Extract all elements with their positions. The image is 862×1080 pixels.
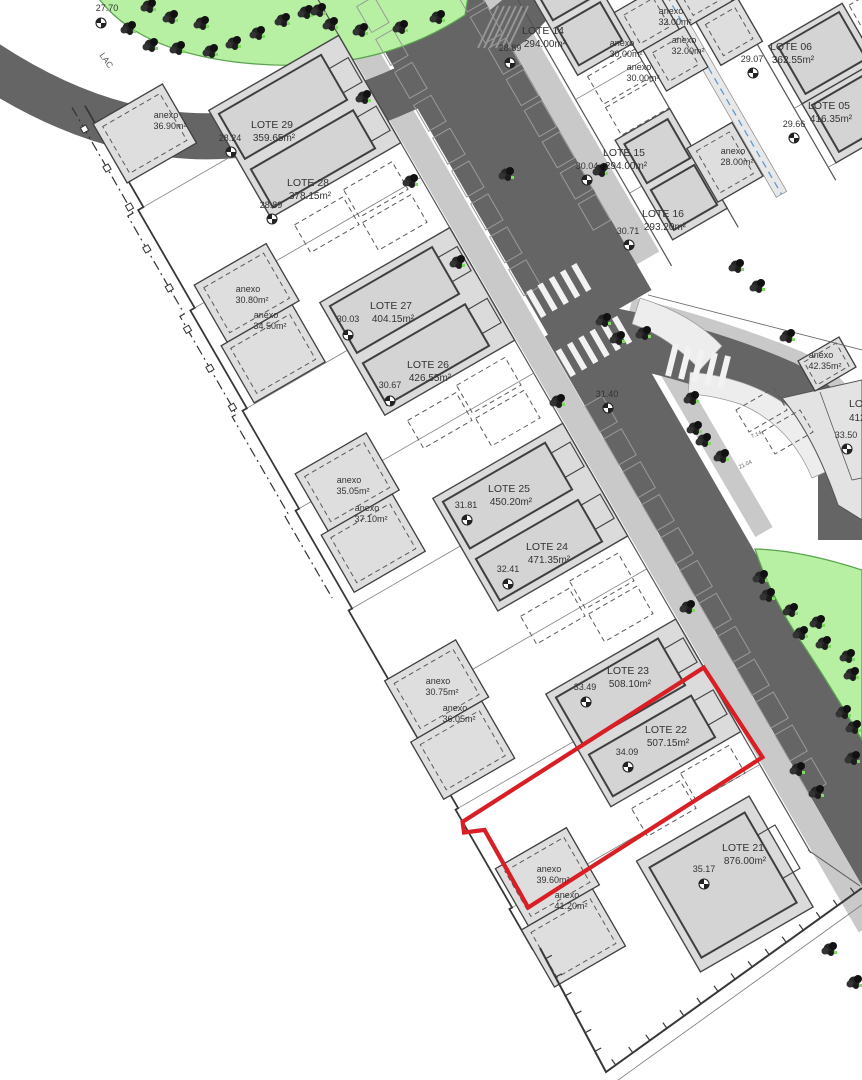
annex-area: 37.10m² xyxy=(354,514,387,524)
tree-icon xyxy=(143,38,159,52)
lot-area: 362.55m² xyxy=(772,55,815,66)
benchmark-icon xyxy=(582,175,592,185)
annex-title: anexo xyxy=(254,310,279,320)
annex-title: anexo xyxy=(443,703,468,713)
annex-title: anexo xyxy=(337,475,362,485)
lot-elevation: 30.71 xyxy=(617,226,640,236)
spot-elevation: 27.70 xyxy=(96,3,119,13)
benchmark-icon xyxy=(462,515,472,525)
sidewalks xyxy=(332,0,862,926)
annex-title: anexo xyxy=(721,146,746,156)
lot-area: 416.35m² xyxy=(810,114,853,125)
lot-elevation: 33.49 xyxy=(574,682,597,692)
lot-elevation: 33.50 xyxy=(835,430,858,440)
lot-name: LOTE 22 xyxy=(645,724,687,736)
benchmark-icon xyxy=(623,762,633,772)
annex-area: 42.35m² xyxy=(808,361,841,371)
annex-title: anexo xyxy=(610,38,635,48)
lot-elevation: 35.17 xyxy=(693,864,716,874)
annex-title: anexo xyxy=(672,35,697,45)
benchmark-icon xyxy=(343,330,353,340)
lot-name: LOTE xyxy=(849,398,862,410)
lot-elevation: 28.89 xyxy=(499,43,522,53)
benchmark-icon xyxy=(624,240,634,250)
lot-elevation: 28.24 xyxy=(219,133,242,143)
benchmark-icon xyxy=(267,214,277,224)
lot-name: LOTE 21 xyxy=(722,842,764,854)
lot-elevation: 30.04 xyxy=(576,161,599,171)
annex-title: anexo xyxy=(355,503,380,513)
benchmark-icon xyxy=(385,396,395,406)
lot-elevation: 29.66 xyxy=(783,119,806,129)
lot-name: LOTE 27 xyxy=(370,300,412,312)
annex-area: 32.00m² xyxy=(671,46,704,56)
annex-area: 30.80m² xyxy=(235,295,268,305)
annex-area: 39.60m² xyxy=(536,875,569,885)
lot-name: LOTE 28 xyxy=(287,177,329,189)
lot-name: LOTE 05 xyxy=(808,100,850,112)
lot-elevation: 32.41 xyxy=(497,564,520,574)
dimension-label: 21.04 xyxy=(738,459,753,470)
annex-title: anexo xyxy=(809,350,834,360)
tree-icon xyxy=(750,279,766,293)
lot-area: 294.00m² xyxy=(524,39,567,50)
spot-elevation: 31.40 xyxy=(596,389,619,399)
lot-area: 450.20m² xyxy=(490,497,533,508)
lot-area: 378.15m² xyxy=(289,191,332,202)
lot-area: 426.55m² xyxy=(409,373,452,384)
benchmark-icon xyxy=(505,58,515,68)
benchmark-icon xyxy=(748,68,758,78)
benchmark-icon xyxy=(699,879,709,889)
lot-name: LOTE 25 xyxy=(488,483,530,495)
benchmark-icon xyxy=(226,147,236,157)
benchmark-icon xyxy=(603,403,613,413)
annex-area: 28.00m² xyxy=(720,157,753,167)
annex-title: anexo xyxy=(236,284,261,294)
annex-area: 41.20m² xyxy=(554,901,587,911)
benchmark-icon xyxy=(789,133,799,143)
lot-name: LOTE 15 xyxy=(603,147,645,159)
lot-elevation: 31.81 xyxy=(455,500,478,510)
lot-name: LOTE 24 xyxy=(526,541,568,553)
benchmark-icon xyxy=(581,697,591,707)
annex-parcel-label: anexo32.00m² xyxy=(671,35,704,56)
tree-icon xyxy=(847,975,862,989)
tree-icon xyxy=(403,174,419,188)
lot-elevation: 28.89 xyxy=(260,200,283,210)
lot-area: 359.65m² xyxy=(253,133,296,144)
lot-area: 294.00m² xyxy=(605,161,648,172)
annex-area: 30.00m² xyxy=(609,49,642,59)
lot-area: 293.20m² xyxy=(644,222,687,233)
annex-area: 30.75m² xyxy=(425,687,458,697)
annex-title: anexo xyxy=(426,676,451,686)
lot-name: LOTE 14 xyxy=(522,25,564,37)
annex-title: anexo xyxy=(627,62,652,72)
benchmark-icon xyxy=(503,579,513,589)
annex-area: 36.05m² xyxy=(442,714,475,724)
dimension-label: 7.14 xyxy=(750,430,762,440)
annex-area: 36.90m² xyxy=(153,121,186,131)
tree-icon xyxy=(729,259,745,273)
lot-name: LOTE 26 xyxy=(407,359,449,371)
lot-area: 508.10m² xyxy=(609,679,652,690)
lot-area: 876.00m² xyxy=(724,856,767,867)
lot-name: LOTE 23 xyxy=(607,665,649,677)
lot-elevation: 29.07 xyxy=(741,54,764,64)
boundary-label: LAC xyxy=(98,51,116,70)
annex-title: anexo xyxy=(555,890,580,900)
lot-area: 412 xyxy=(849,413,862,424)
tree-icon xyxy=(780,329,796,343)
lot-name: LOTE 29 xyxy=(251,119,293,131)
annex-area: 34.50m² xyxy=(253,321,286,331)
lot-area: 507.15m² xyxy=(647,738,690,749)
benchmark-icon xyxy=(96,18,106,28)
lot-name: LOTE 06 xyxy=(770,41,812,53)
lot-area: 471.35m² xyxy=(528,555,571,566)
lot-name: LOTE 16 xyxy=(642,208,684,220)
lot-elevation: 30.67 xyxy=(379,380,402,390)
lot-elevation: 30.03 xyxy=(337,314,360,324)
lot-elevation: 34.09 xyxy=(616,747,639,757)
benchmark-icon xyxy=(842,444,852,454)
site-plan-canvas: LAC LOTE 29359.65m²28.24LOTE 28378.15m²2… xyxy=(0,0,862,1080)
subdivision-plan: LAC LOTE 29359.65m²28.24LOTE 28378.15m²2… xyxy=(0,0,862,1080)
lot-area: 404.15m² xyxy=(372,314,415,325)
annex-title: anexo xyxy=(537,864,562,874)
annex-area: 35.05m² xyxy=(336,486,369,496)
tree-icon xyxy=(822,942,838,956)
annex-title: anexo xyxy=(154,110,179,120)
annex-area: 32.00m² xyxy=(658,17,691,27)
annex-title: anexo xyxy=(659,6,684,16)
annex-area: 30.00m² xyxy=(626,73,659,83)
